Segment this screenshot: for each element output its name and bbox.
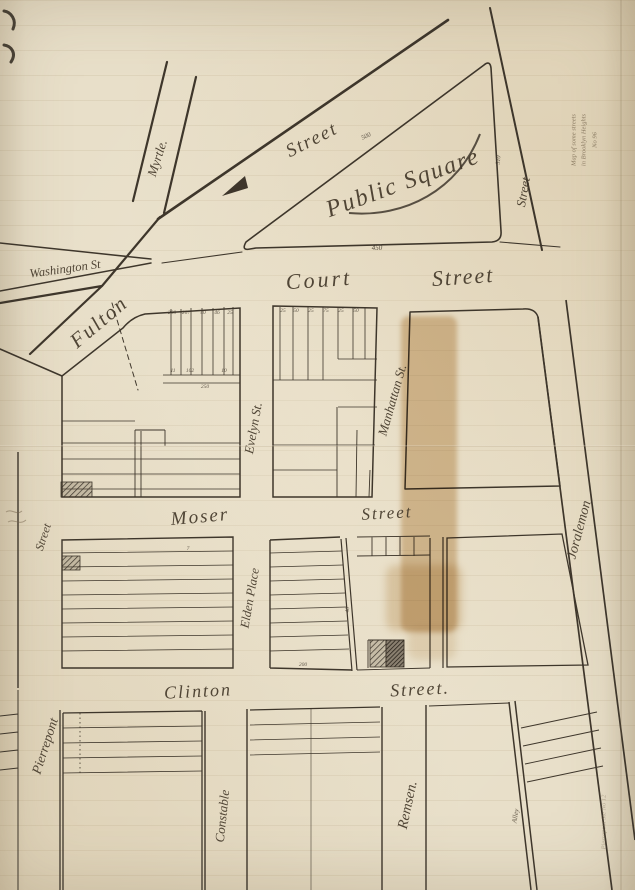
- pencil-note: Map of some streets in Brooklyn Heights …: [569, 95, 600, 185]
- block-5: [270, 536, 430, 671]
- lot-number: 200: [168, 310, 177, 316]
- lot-number: 25: [280, 308, 286, 314]
- fulton-arrowhead: [222, 176, 248, 196]
- lot-number: 46: [214, 309, 220, 316]
- lot-number: 40: [200, 309, 206, 316]
- lot-number: 25: [338, 308, 344, 314]
- lot-number: 102: [186, 368, 195, 374]
- lot-number: 75: [323, 308, 329, 314]
- pencil-scribble: [6, 511, 26, 522]
- pencil-note-line2: in Brooklyn Heights: [580, 95, 590, 185]
- street-label-court: Court: [285, 267, 353, 294]
- lot-number: 25: [227, 310, 233, 316]
- lot-number: 50: [353, 308, 359, 314]
- lot-number: 50: [293, 308, 299, 314]
- lot-numbers: 200 207 40 46 25 11 102 10 25 50 25 75 2…: [168, 308, 359, 668]
- lot-number: 25: [308, 308, 314, 314]
- lot-number: 40: [344, 607, 351, 613]
- block-2: [273, 306, 377, 497]
- blocks-south: [0, 690, 603, 890]
- street-label-moser-street: Street: [361, 503, 413, 523]
- lot-number: 207: [182, 310, 191, 316]
- street-label-clinton-street: Street.: [390, 678, 451, 699]
- pencil-note-line1: Map of some streets: [569, 95, 579, 185]
- map-sheet: 200 207 40 46 25 11 102 10 25 50 25 75 2…: [0, 0, 635, 890]
- street-manhattan-south: [430, 537, 443, 668]
- lot-number: 11: [170, 368, 175, 374]
- street-label-court-street: Street: [431, 264, 495, 290]
- dimension-square-base: 450: [372, 244, 383, 252]
- block-3: [405, 309, 560, 489]
- pencil-note-line3: No 96: [590, 95, 600, 185]
- docket-note: Pierrepont Ste No 12: [601, 795, 608, 850]
- lot-number: 7: [187, 546, 190, 552]
- ink-marks-top-left: [4, 11, 14, 62]
- dimension-fulton: 500: [360, 131, 373, 142]
- block-4: [62, 537, 233, 668]
- lot-number: 10: [221, 368, 227, 374]
- street-label-moser: Moser: [170, 505, 230, 529]
- lot-number: 200: [299, 662, 308, 668]
- street-label-clinton: Clinton: [164, 680, 233, 702]
- lot-number: 250: [201, 384, 210, 390]
- dimension-square-right: 310: [495, 155, 502, 166]
